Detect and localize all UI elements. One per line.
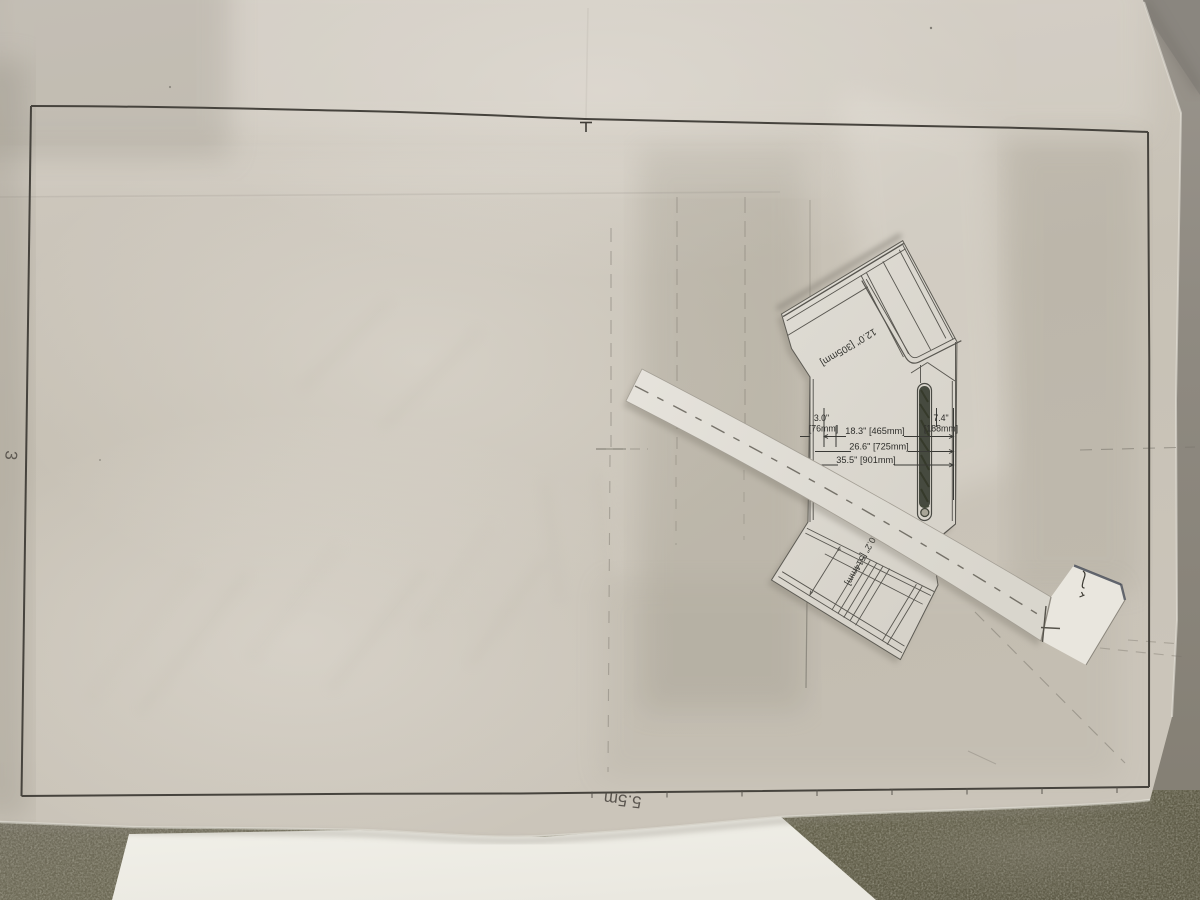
svg-text:18.3" [465mm]: 18.3" [465mm] <box>845 426 904 436</box>
svg-text:7.4": 7.4" <box>933 413 948 423</box>
svg-text:3.0": 3.0" <box>814 413 829 423</box>
svg-text:3: 3 <box>1 450 21 461</box>
svg-text:26.6" [725mm]: 26.6" [725mm] <box>849 442 908 452</box>
svg-text:35.5" [901mm]: 35.5" [901mm] <box>836 455 895 465</box>
svg-text:[76mm]: [76mm] <box>809 424 838 434</box>
svg-text:[188mm]: [188mm] <box>924 424 958 434</box>
